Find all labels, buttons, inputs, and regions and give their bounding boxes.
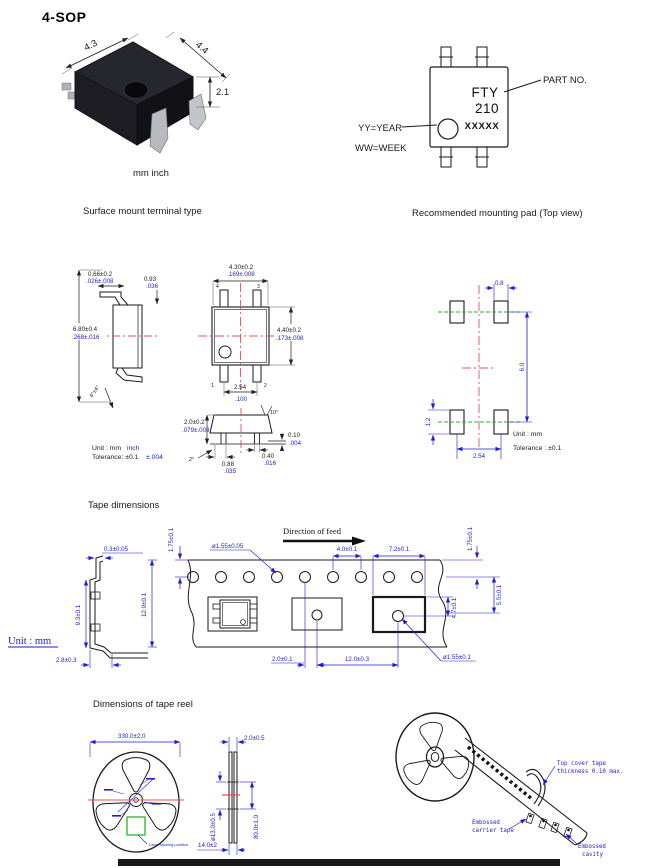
mounting-pad-drawing: 0.8 6.0 1.2 2.54 Unit : mm Tolerance : ±… <box>425 280 562 460</box>
caption-surface-mount: Surface mount terminal type <box>83 206 202 217</box>
side-span-in: .268±.016 <box>72 334 100 341</box>
cover-tape-flap <box>527 774 541 804</box>
note-tolerance-mm: Tolerance: ±0.1 <box>92 454 139 461</box>
tape-edge-left-dim: 1.75±0.1 <box>168 527 175 552</box>
side-lead-width-in: .026±.008 <box>86 278 114 285</box>
top-depth-mm: 4.40±0.2 <box>277 327 302 334</box>
reel-front-view: 330.0±2.0 <box>88 733 188 852</box>
caption-tape-reel: Dimensions of tape reel <box>93 699 193 710</box>
caption-tape-dimensions: Tape dimensions <box>88 500 159 511</box>
tape-section-height-dim: 9.3±0.1 <box>75 604 82 625</box>
reel-side-view: 2.0±0.5 ø13.0±0.5 80.0±1.0 14.0±2 <box>197 735 265 855</box>
pad-pitch-dim: 2.54 <box>473 453 486 460</box>
label-sticking-area <box>127 817 145 835</box>
front-lead-in: .016 <box>264 460 277 467</box>
reel-total-width-dim: 14.0±2 <box>198 842 217 849</box>
photo-units-caption: mm inch <box>133 168 169 179</box>
tape-dim-5-5: 5.5±0.1 <box>496 584 503 605</box>
reel-3d-labels: Top cover tape thickness 0.10 max. Embos… <box>472 761 623 858</box>
pad-unit-note: Unit : mm <box>513 431 542 438</box>
marking-line2: 210 <box>475 101 499 116</box>
front-angle-lead: 2° <box>189 457 194 463</box>
top-view-drawing: 4.30±0.2 .169±.008 4 3 1 2 4.40±0.2 .173… <box>198 264 316 403</box>
front-angle-top: 10° <box>270 410 278 416</box>
side-lead-width-mm: 0.66±0.2 <box>88 271 113 278</box>
cover-tape-label-line2: thickness 0.10 max. <box>557 769 623 775</box>
pocket-hole-dia-dim: ø1.55±0.1 <box>443 654 471 661</box>
reel-hub-dia-dim: ø13.0±0.5 <box>210 813 217 841</box>
hole-pitch-dim: 4.0±0.1 <box>337 546 358 553</box>
pad-width-dim: 0.8 <box>495 280 504 287</box>
front-foot-in: .035 <box>224 468 237 475</box>
week-code-label: WW=WEEK <box>355 143 407 154</box>
photo-dim-4-4: 4.4 <box>193 40 210 57</box>
marking-diagram: FTY 210 XXXXX PART NO. YY=YEAR WW=WEEK <box>350 36 636 176</box>
carrier-tape-label-line1: Embossed <box>472 820 500 826</box>
cavity-label-line1: Embossed <box>578 844 606 850</box>
direction-of-feed-label: Direction of feed <box>283 526 342 536</box>
part-no-label: PART NO. <box>543 75 587 86</box>
pad-vertical-span-dim: 6.0 <box>519 362 526 371</box>
front-foot-mm: 0.88 <box>222 461 235 468</box>
side-lead-angle: 4°±4° <box>89 385 102 400</box>
photo-dim-4-3: 4.3 <box>83 38 100 54</box>
tape-width-dim: 12.0±0.1 <box>141 592 148 617</box>
reel-diameter-dim: 330.0±2.0 <box>118 733 146 740</box>
reel-hub-annotations <box>104 778 161 817</box>
pad-height-dim: 1.2 <box>425 417 432 426</box>
top-pin4-number: 4 <box>216 284 219 290</box>
top-depth-in: .173±.008 <box>276 335 304 342</box>
reel-side-width-dim: 2.0±0.5 <box>244 735 265 742</box>
top-pin3-number: 3 <box>257 284 260 290</box>
pocket-pitch-dim: 12.0±0.3 <box>345 656 370 663</box>
caption-mounting-pad: Recommended mounting pad (Top view) <box>412 208 583 219</box>
reel-inner-dia-dim: 80.0±1.0 <box>253 814 260 839</box>
label-sticking-position: Label sticking position <box>149 842 188 847</box>
tape-drawing: Direction of feed <box>0 518 646 710</box>
reel-drawing: 330.0±2.0 <box>60 715 340 868</box>
tape-thickness-dim: 0.3±0.05 <box>104 546 129 553</box>
embossed-cavities <box>526 813 572 837</box>
photo-dim-2-1: 2.1 <box>216 87 229 98</box>
front-height-in: .079±.008 <box>182 427 210 434</box>
front-height-mm: 2.0±0.2 <box>184 419 205 426</box>
note-unit-mm: Unit : mm <box>92 445 121 452</box>
package-photo-figure: 4.3 4.4 2.1 mm inch <box>40 26 260 184</box>
tape-edge-right-dim: 1.75±0.1 <box>467 526 474 551</box>
tape-on-reel-perforation <box>468 747 532 799</box>
outline-drawings: 0.66±0.2 .026±.008 0.93 .036 6.80±0.4 .2… <box>60 253 620 475</box>
side-offset-mm: 0.93 <box>144 276 157 283</box>
emboss-depth-dim: 2.8±0.3 <box>56 657 77 664</box>
top-pitch-mm: 2.54 <box>234 384 247 391</box>
hole-offset-dim: 2.0±0.1 <box>272 656 293 663</box>
front-view-drawing: 10° 2.0±0.2 .079±.008 0.10 .004 2° 0.88 … <box>182 405 302 475</box>
carrier-tape-label-line2: carrier tape <box>472 828 514 834</box>
side-span-mm: 6.80±0.4 <box>73 326 98 333</box>
tape-cross-section <box>90 556 148 658</box>
top-pin2-number: 2 <box>264 383 267 389</box>
top-pitch-in: .100 <box>235 396 248 403</box>
pin1-indicator-circle <box>438 119 458 139</box>
note-unit-inch: inch <box>127 445 140 452</box>
datasheet-page: 4-SOP 4.3 4. <box>0 0 646 868</box>
pocket-width-dim: 7.2±0.1 <box>389 546 410 553</box>
cover-tape-label-line1: Top cover tape <box>557 761 606 767</box>
side-view-drawing: 0.66±0.2 .026±.008 0.93 .036 6.80±0.4 .2… <box>72 270 159 408</box>
front-standoff-in: .004 <box>289 440 302 447</box>
page-footer-rule <box>118 859 560 866</box>
sprocket-hole-dia-dim: ø1.55±0.05 <box>212 543 244 550</box>
top-width-in: .169±.008 <box>227 271 255 278</box>
front-lead-mm: 0.40 <box>262 453 275 460</box>
marking-line3: XXXXX <box>465 121 500 132</box>
top-width-mm: 4.30±0.2 <box>229 264 254 271</box>
tape-unit-note: Unit : mm <box>8 636 51 647</box>
cavity-label-line2: cavity <box>582 852 603 858</box>
tape-dim-4-7: 4.7±0.1 <box>451 597 458 618</box>
front-standoff-mm: 0.10 <box>288 432 301 439</box>
outline-unit-note: Unit : mm inch Tolerance: ±0.1 ±.004 <box>92 445 163 461</box>
page-title: 4-SOP <box>42 9 87 25</box>
pad-tolerance-note: Tolerance : ±0.1 <box>513 445 562 452</box>
reel-3d-figure: Top cover tape thickness 0.10 max. Embos… <box>380 700 646 868</box>
year-code-label: YY=YEAR <box>358 123 402 134</box>
note-tolerance-inch: ±.004 <box>146 454 163 461</box>
marking-line1: FTY <box>472 85 499 100</box>
package-photo <box>62 42 206 153</box>
side-offset-in: .036 <box>146 283 159 290</box>
top-pin1-number: 1 <box>211 383 214 389</box>
